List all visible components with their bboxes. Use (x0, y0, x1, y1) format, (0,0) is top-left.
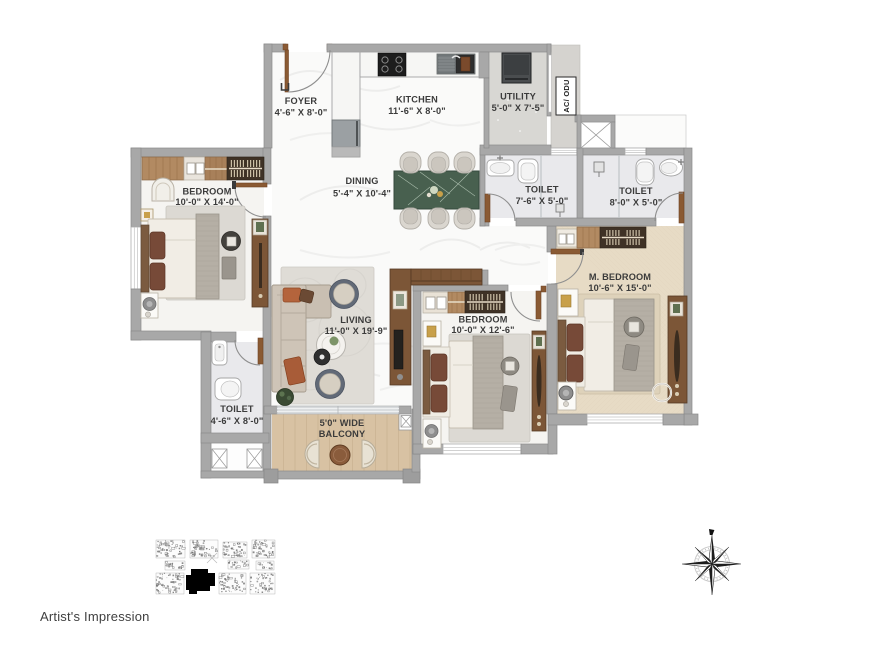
svg-text:4'-6" X 8'-0": 4'-6" X 8'-0" (275, 108, 328, 118)
svg-text:KITCHEN: KITCHEN (396, 95, 438, 105)
svg-text:FOYER: FOYER (285, 96, 318, 106)
svg-text:TOILET: TOILET (619, 186, 653, 196)
svg-text:TOILET: TOILET (525, 185, 559, 195)
svg-text:11'-6" X 8'-0": 11'-6" X 8'-0" (388, 106, 446, 116)
svg-text:BALCONY: BALCONY (319, 429, 365, 439)
svg-text:10'-0" X 12'-6": 10'-0" X 12'-6" (451, 325, 514, 335)
svg-text:8'-0" X 5'-0": 8'-0" X 5'-0" (610, 198, 663, 208)
svg-text:M. BEDROOM: M. BEDROOM (589, 272, 651, 282)
svg-text:10'-0" X 14'-0": 10'-0" X 14'-0" (175, 197, 238, 207)
svg-text:7'-6" X 5'-0": 7'-6" X 5'-0" (516, 196, 569, 206)
svg-text:AC/ ODU: AC/ ODU (562, 79, 571, 112)
svg-text:UTILITY: UTILITY (500, 92, 536, 102)
svg-text:5'-4" X 10'-4": 5'-4" X 10'-4" (333, 189, 391, 199)
svg-text:TOILET: TOILET (220, 404, 254, 414)
svg-text:11'-0" X 19'-9": 11'-0" X 19'-9" (325, 326, 388, 336)
svg-text:10'-6" X 15'-0": 10'-6" X 15'-0" (588, 283, 651, 293)
svg-text:Artist's Impression: Artist's Impression (40, 609, 150, 624)
svg-text:4'-6" X 8'-0": 4'-6" X 8'-0" (211, 416, 264, 426)
svg-text:DINING: DINING (345, 176, 378, 186)
svg-text:5'-0" X 7'-5": 5'-0" X 7'-5" (492, 103, 545, 113)
svg-text:BEDROOM: BEDROOM (182, 187, 231, 197)
svg-text:BEDROOM: BEDROOM (458, 315, 507, 325)
svg-text:5'0" WIDE: 5'0" WIDE (320, 418, 365, 428)
svg-text:LIVING: LIVING (340, 315, 372, 325)
